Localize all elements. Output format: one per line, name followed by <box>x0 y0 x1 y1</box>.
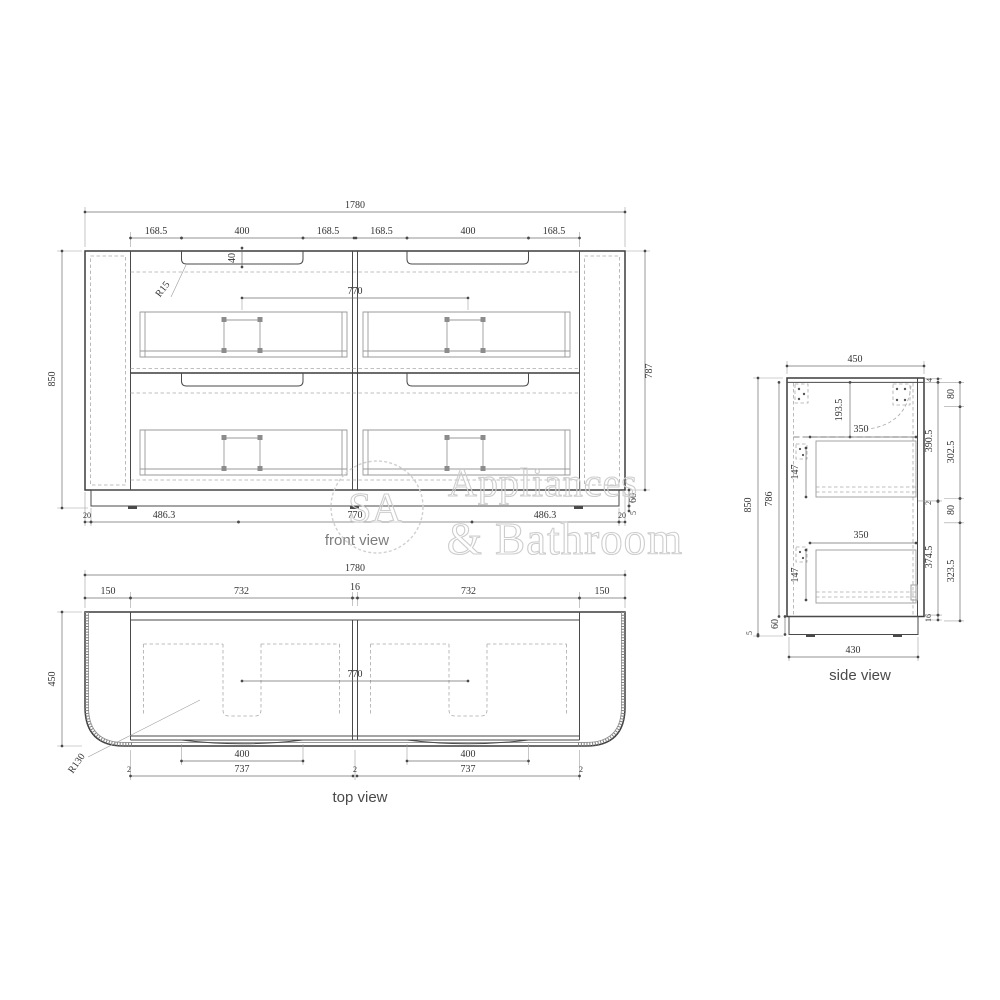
dim-top-seg-3: 16 <box>350 582 360 593</box>
dim-front-seg-1: 168.5 <box>145 226 168 237</box>
dim-top-seg-4: 732 <box>461 586 476 597</box>
dim-side-foot-height: 5 <box>745 631 754 635</box>
dim-recess-depth: 40 <box>227 253 238 263</box>
dim-side-right-outer-4: 323.5 <box>946 560 957 583</box>
dim-side-right-inner-4: 374.5 <box>924 546 935 569</box>
dim-front-overall-height: 850 <box>47 372 58 387</box>
dim-recess-radius: R15 <box>154 280 173 300</box>
dim-top-seg-5: 150 <box>595 586 610 597</box>
watermark-line2: & Bathroom <box>447 514 683 564</box>
dim-front-seg-3: 168.5 <box>317 226 340 237</box>
front-view-drawer-internals <box>140 312 570 475</box>
dim-side-right-outer-3: 80 <box>946 505 957 515</box>
dim-side-right-inner-1: 4 <box>925 378 934 382</box>
dim-front-bottom-1: 20 <box>83 511 91 520</box>
dim-side-depth: 450 <box>848 354 863 365</box>
dim-side-right-outer-1: 80 <box>946 389 957 399</box>
top-view-label: top view <box>332 789 387 806</box>
dim-corner-radius: R130 <box>66 752 87 776</box>
dim-top-bottom-4: 737 <box>461 764 476 775</box>
side-view: 450 850 786 60 5 193.5 350 147 350 147 <box>743 354 964 684</box>
top-view-hidden-drawers <box>144 644 567 716</box>
dim-side-top-inset: 193.5 <box>834 399 845 422</box>
dim-top-recess-2: 400 <box>461 749 476 760</box>
dim-top-seg-1: 150 <box>101 586 116 597</box>
dim-side-right-inner-5: 16 <box>924 614 933 622</box>
dim-side-right-outer-2: 302.5 <box>946 441 957 464</box>
dim-side-drawer-top-height: 147 <box>790 465 801 480</box>
dim-top-overall-width: 1780 <box>345 563 365 574</box>
dim-side-plinth-height: 60 <box>770 619 781 629</box>
watermark-line1: Appliances <box>448 460 638 505</box>
dim-side-right-inner-2: 390.5 <box>924 430 935 453</box>
dim-side-drawer-bottom-depth: 350 <box>854 530 869 541</box>
dim-top-bottom-3: 2 <box>353 765 357 774</box>
dim-top-bottom-5: 2 <box>579 765 583 774</box>
dim-front-bottom-2: 486.3 <box>153 510 176 521</box>
dim-side-body-height: 786 <box>764 492 775 507</box>
dim-front-seg-4: 168.5 <box>370 226 393 237</box>
front-view-label: front view <box>325 532 389 549</box>
side-view-hinges-and-drawers <box>795 384 916 603</box>
dim-front-overall-width: 1780 <box>345 200 365 211</box>
dim-front-seg-2: 400 <box>235 226 250 237</box>
dim-front-basin-spacing: 770 <box>348 286 363 297</box>
side-view-dimensions: 450 850 786 60 5 193.5 350 147 350 147 <box>743 354 964 661</box>
dim-side-drawer-bottom-height: 147 <box>790 568 801 583</box>
watermark-monogram: SA <box>348 486 402 532</box>
dim-top-bottom-1: 2 <box>127 765 131 774</box>
dim-top-bottom-2: 737 <box>235 764 250 775</box>
dim-top-basin-spacing: 770 <box>348 669 363 680</box>
dim-side-drawer-top-depth: 350 <box>854 424 869 435</box>
top-view-dimensions: 1780 150 732 16 732 150 450 770 R130 <box>47 563 625 780</box>
side-view-label: side view <box>829 667 891 684</box>
dim-top-depth: 450 <box>47 672 58 687</box>
dim-front-seg-5: 400 <box>461 226 476 237</box>
dim-side-right-inner-3: 2 <box>924 501 933 505</box>
dim-front-seg-6: 168.5 <box>543 226 566 237</box>
dim-side-overall-height: 850 <box>743 498 754 513</box>
dim-top-seg-2: 732 <box>234 586 249 597</box>
dim-side-plinth-depth: 430 <box>846 645 861 656</box>
top-view: 1780 150 732 16 732 150 450 770 R130 <box>47 563 625 806</box>
dim-top-recess-1: 400 <box>235 749 250 760</box>
dim-front-body-height: 787 <box>644 364 655 379</box>
side-view-outline <box>787 378 924 637</box>
technical-drawing-canvas: 1780 168.5 400 168.5 168.5 400 168.5 40 … <box>0 0 1000 1000</box>
